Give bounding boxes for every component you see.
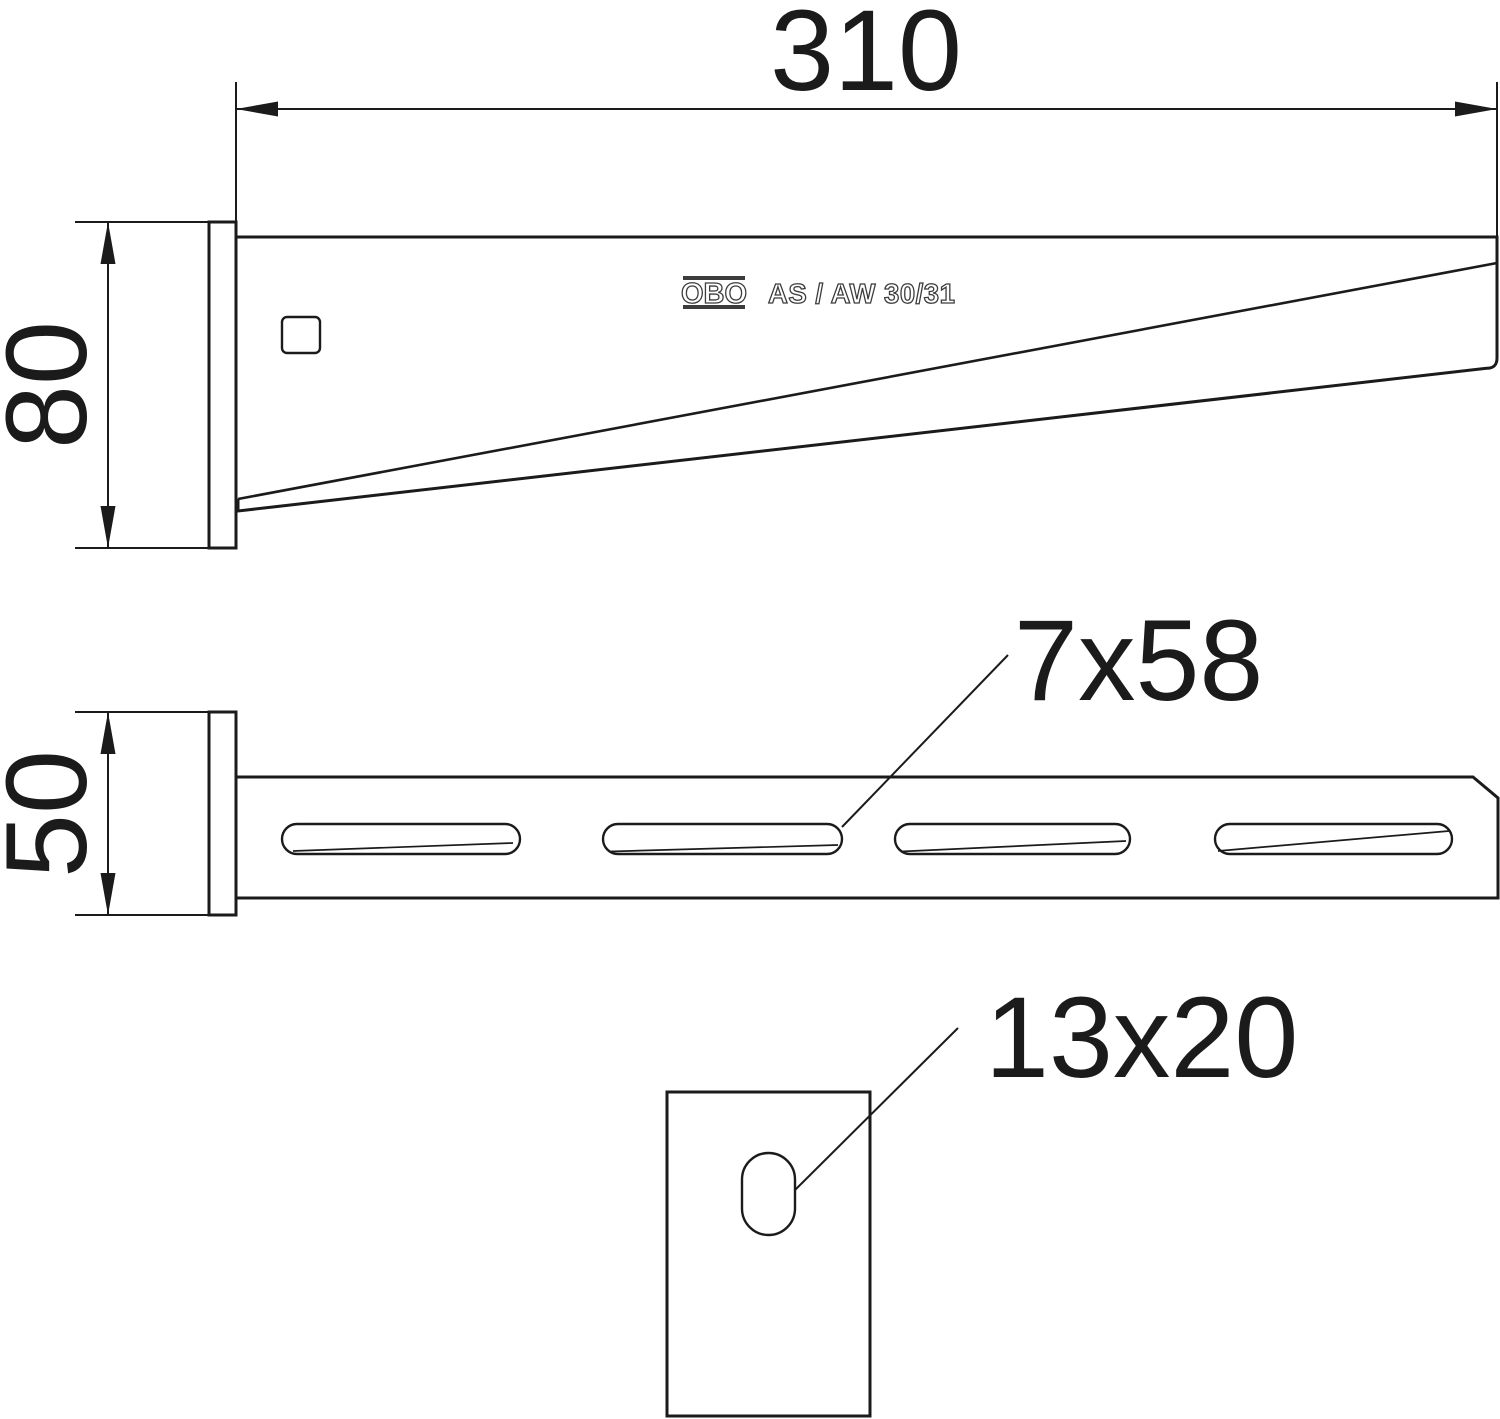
dim-width-label: 50: [0, 750, 111, 878]
dim-width-arrow-down: [101, 873, 116, 915]
slot-4: [1215, 824, 1452, 854]
front-wall-plate: [667, 1092, 870, 1416]
slot-leader-line: [842, 655, 1008, 827]
dim-height-label: 80: [0, 321, 111, 449]
dim-height-arrow-up: [101, 222, 116, 264]
hole-size-label: 13x20: [985, 974, 1298, 1102]
bracket-drawing: 310 80 OBO AS /: [0, 0, 1500, 1419]
hole-leader-line: [795, 1028, 958, 1190]
side-square-hole: [282, 317, 320, 353]
dim-length-arrow-right: [1455, 102, 1497, 117]
side-view: 310 80 OBO AS /: [0, 0, 1497, 548]
dim-width-arrow-up: [101, 712, 116, 754]
dim-length-label: 310: [770, 0, 962, 115]
front-oblong-hole: [742, 1153, 795, 1235]
brand-stamp: OBO AS / AW 30/31: [681, 278, 955, 310]
slot-4-taper-edge: [1218, 831, 1449, 851]
dim-length-arrow-left: [236, 102, 278, 117]
technical-drawing-page: 310 80 OBO AS /: [0, 0, 1500, 1419]
product-label: AS / AW 30/31: [768, 278, 955, 309]
plan-view: 7x58 50: [0, 597, 1498, 915]
dim-height-arrow-down: [101, 506, 116, 548]
front-view: 13x20: [667, 974, 1298, 1416]
side-wall-plate: [209, 222, 236, 548]
plan-wall-plate: [209, 712, 236, 915]
obo-logo-text: OBO: [681, 278, 747, 310]
slot-3-taper-edge: [901, 841, 1126, 852]
slot-2-taper-edge: [610, 845, 838, 852]
slot-size-label: 7x58: [1014, 597, 1263, 725]
slot-1-taper-edge: [293, 843, 513, 851]
slot-2: [603, 824, 842, 854]
plan-arm-outline: [236, 777, 1498, 898]
